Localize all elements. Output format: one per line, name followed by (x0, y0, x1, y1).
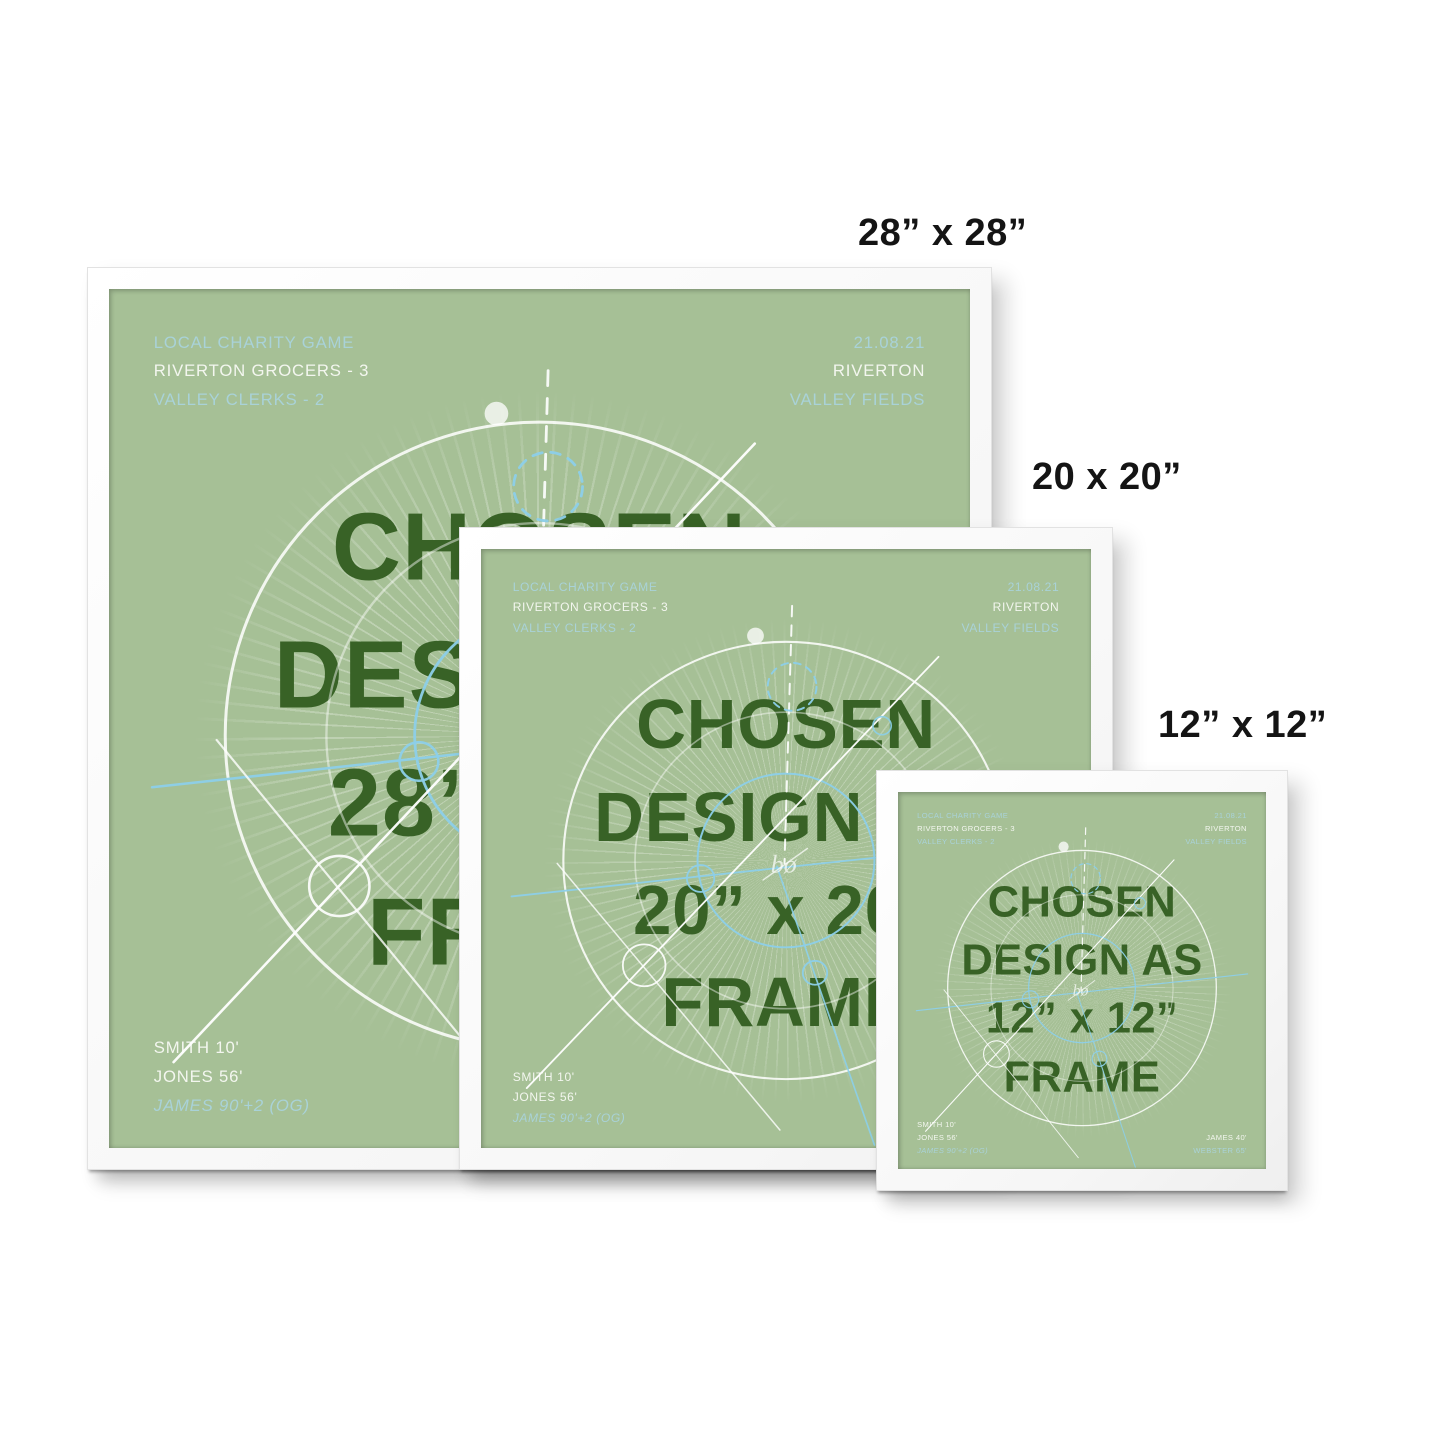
away-scorers-block: JAMES 40' WEBSTER 65' (1193, 1131, 1247, 1157)
home-scorers-block: SMITH 10' JONES 56' JAMES 90'+2 (OG) (154, 1034, 310, 1120)
match-venue: VALLEY FIELDS (790, 386, 925, 415)
home-scorers-block: SMITH 10' JONES 56' JAMES 90'+2 (OG) (513, 1067, 626, 1129)
venue-info-block: 21.08.21 RIVERTON VALLEY FIELDS (790, 329, 925, 415)
away-team-score: VALLEY CLERKS - 2 (513, 618, 669, 639)
white-dot (747, 628, 764, 644)
poster-12x12: LOCAL CHARITY GAME RIVERTON GROCERS - 3 … (898, 792, 1266, 1169)
scorer: SMITH 10' (154, 1034, 310, 1063)
competition-name: LOCAL CHARITY GAME (513, 577, 669, 598)
scorer: JONES 56' (154, 1063, 310, 1092)
match-venue: VALLEY FIELDS (961, 618, 1059, 639)
match-date: 21.08.21 (961, 577, 1059, 598)
product-mockup-scene: 28” x 28” 20 x 20” 12” x 12” LOCAL CHARI… (0, 0, 1445, 1445)
heading-line-1: CHOSEN (481, 678, 1091, 771)
heading-line-4: FRAME (898, 1048, 1266, 1106)
competition-name: LOCAL CHARITY GAME (917, 809, 1015, 822)
home-team-score: RIVERTON GROCERS - 3 (917, 822, 1015, 835)
match-town: RIVERTON (790, 357, 925, 386)
match-info-block: LOCAL CHARITY GAME RIVERTON GROCERS - 3 … (917, 809, 1015, 848)
size-label-12x12: 12” x 12” (1158, 704, 1327, 747)
venue-info-block: 21.08.21 RIVERTON VALLEY FIELDS (961, 577, 1059, 639)
frame-12x12: LOCAL CHARITY GAME RIVERTON GROCERS - 3 … (876, 770, 1288, 1191)
home-team-score: RIVERTON GROCERS - 3 (154, 357, 369, 386)
home-scorers-block: SMITH 10' JONES 56' JAMES 90'+2 (OG) (917, 1118, 988, 1157)
scorer: SMITH 10' (917, 1118, 988, 1131)
match-date: 21.08.21 (790, 329, 925, 358)
away-team-score: VALLEY CLERKS - 2 (154, 386, 369, 415)
match-date: 21.08.21 (1185, 809, 1247, 822)
match-venue: VALLEY FIELDS (1185, 835, 1247, 848)
away-team-score: VALLEY CLERKS - 2 (917, 835, 1015, 848)
white-dot (1059, 841, 1069, 851)
scorer-own-goal: JAMES 90'+2 (OG) (513, 1108, 626, 1129)
white-dot (485, 402, 509, 426)
size-label-28x28: 28” x 28” (858, 212, 1027, 255)
heading-line-1: CHOSEN (898, 873, 1266, 931)
heading-size-line: 12” x 12” (898, 990, 1266, 1048)
scorer: WEBSTER 65' (1193, 1144, 1247, 1157)
match-town: RIVERTON (1185, 822, 1247, 835)
scorer: JONES 56' (917, 1131, 988, 1144)
competition-name: LOCAL CHARITY GAME (154, 329, 369, 358)
size-label-20x20: 20 x 20” (1032, 456, 1182, 499)
venue-info-block: 21.08.21 RIVERTON VALLEY FIELDS (1185, 809, 1247, 848)
scorer: JONES 56' (513, 1087, 626, 1108)
match-info-block: LOCAL CHARITY GAME RIVERTON GROCERS - 3 … (154, 329, 369, 415)
match-info-block: LOCAL CHARITY GAME RIVERTON GROCERS - 3 … (513, 577, 669, 639)
home-team-score: RIVERTON GROCERS - 3 (513, 597, 669, 618)
scorer-own-goal: JAMES 90'+2 (OG) (154, 1092, 310, 1121)
scorer: JAMES 40' (1193, 1131, 1247, 1144)
scorer-own-goal: JAMES 90'+2 (OG) (917, 1144, 988, 1157)
heading-line-2: DESIGN AS (898, 932, 1266, 990)
poster-heading: CHOSEN DESIGN AS 12” x 12” FRAME (898, 873, 1266, 1106)
match-town: RIVERTON (961, 597, 1059, 618)
scorer: SMITH 10' (513, 1067, 626, 1088)
